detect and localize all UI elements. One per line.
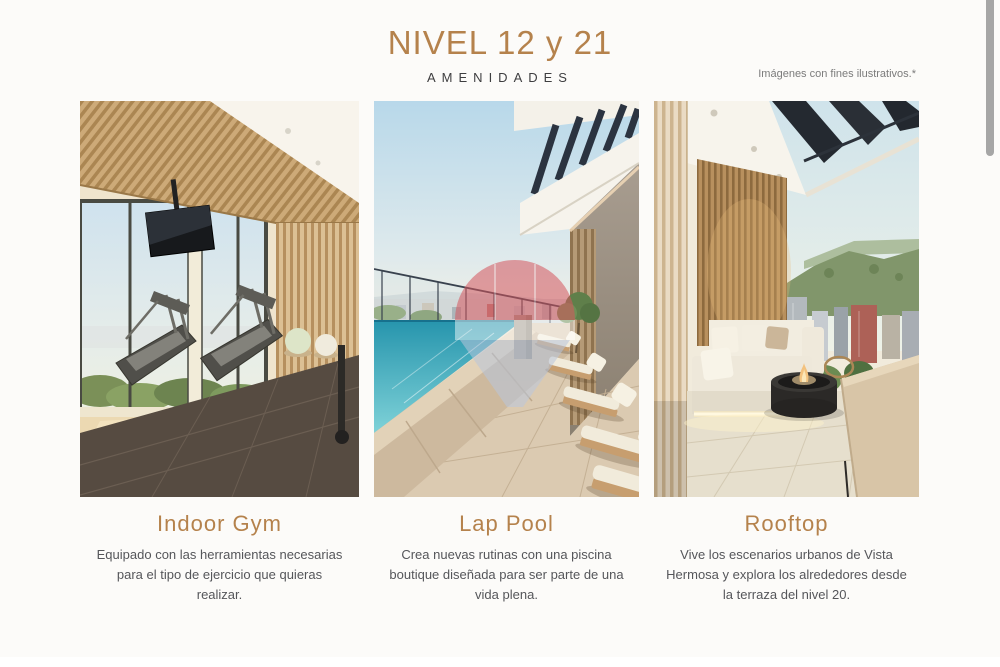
lap-pool-photo	[374, 101, 639, 497]
page-title: NIVEL 12 y 21	[0, 24, 1000, 62]
disclaimer-note: Imágenes con fines ilustrativos.*	[758, 68, 916, 80]
lap-pool-illustration	[374, 101, 639, 497]
indoor-gym-illustration	[80, 101, 359, 497]
inner-slat-screen	[697, 159, 791, 346]
amenity-card-lap-pool: Lap Pool Crea nuevas rutinas con una pis…	[374, 101, 639, 605]
page-bottom-edge	[0, 657, 1000, 667]
amenity-card-rooftop: Rooftop Vive los escenarios urbanos de V…	[654, 101, 919, 605]
scrollbar-thumb[interactable]	[986, 0, 994, 156]
amenity-cards-row: Indoor Gym Equipado con las herramientas…	[80, 101, 919, 605]
amenities-page: NIVEL 12 y 21 AMENIDADES Imágenes con fi…	[0, 0, 1000, 667]
amenity-description: Equipado con las herramientas necesarias…	[95, 545, 345, 605]
indoor-gym-photo	[80, 101, 359, 497]
amenity-description: Vive los escenarios urbanos de Vista Her…	[662, 545, 912, 605]
amenity-description: Crea nuevas rutinas con una piscina bout…	[382, 545, 632, 605]
amenity-title: Rooftop	[654, 511, 919, 537]
rooftop-photo	[654, 101, 919, 497]
amenity-title: Lap Pool	[374, 511, 639, 537]
amenity-card-indoor-gym: Indoor Gym Equipado con las herramientas…	[80, 101, 359, 605]
rooftop-illustration	[654, 101, 919, 497]
amenity-title: Indoor Gym	[80, 511, 359, 537]
